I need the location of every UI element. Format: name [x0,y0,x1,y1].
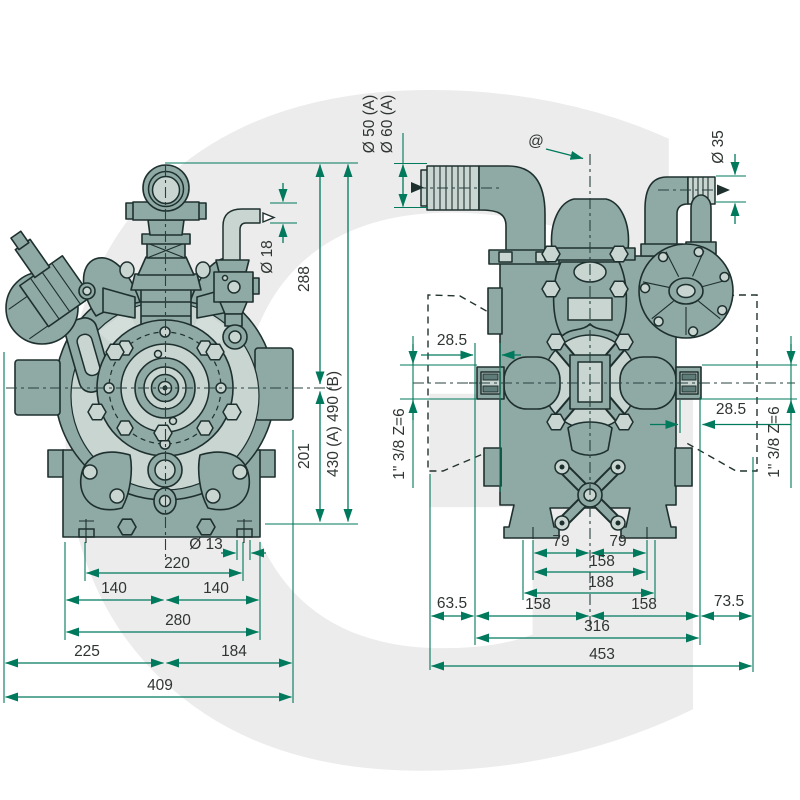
dim-center-height: 288 [296,266,313,292]
dim-base-plate: 188 [588,574,614,591]
dim-bolt-left: 140 [101,580,127,597]
dim-base-width: 280 [165,612,191,629]
dim-foot-half-right: 79 [609,533,626,550]
dim-center-to-base: 201 [296,443,313,469]
pump-dimension-drawing: G [0,0,800,800]
dim-shaft-spec-right: 1" 3/8 Z=6 [766,406,783,477]
dim-overall-height: 430 (A) 490 (B) [325,371,342,477]
right-port-boss [255,348,293,420]
dim-shaft-offset-right: 28.5 [716,401,746,418]
dim-shaft-end-right: 73.5 [714,593,744,610]
dim-overall-width: 453 [589,646,615,663]
dim-foot-span: 158 [589,553,615,570]
dim-overall-width: 409 [147,677,173,694]
gear-cover [639,244,733,338]
dim-slot-diameter: Ø 13 [189,536,223,553]
dim-center-right: 184 [221,643,247,660]
dim-bolt-right: 140 [203,580,229,597]
dim-slot-span: 220 [164,555,190,572]
note-marker: @ [528,133,544,150]
safety-valve [691,195,711,244]
dim-body-width: 316 [584,618,610,635]
diaphragm-head-bottom-right [199,452,250,510]
dim-body-right: 158 [631,596,657,613]
technical-drawing-page: G [0,0,800,800]
dim-shaft-spec-left: 1" 3/8 Z=6 [391,408,408,479]
dim-suction-dia-b: Ø 60 (A) [379,95,396,154]
dim-shaft-end-left: 63.5 [437,595,467,612]
dim-shaft-offset-left: 28.5 [437,332,467,349]
dim-suction-dia-a: Ø 50 (A) [361,95,378,154]
dim-delivery-dia: Ø 35 [710,130,727,164]
dim-outlet-diameter: Ø 18 [259,240,276,274]
dim-foot-half-left: 79 [552,533,569,550]
dim-center-left: 225 [74,643,100,660]
diaphragm-head-bottom-left [81,452,132,510]
dim-body-left: 158 [525,596,551,613]
